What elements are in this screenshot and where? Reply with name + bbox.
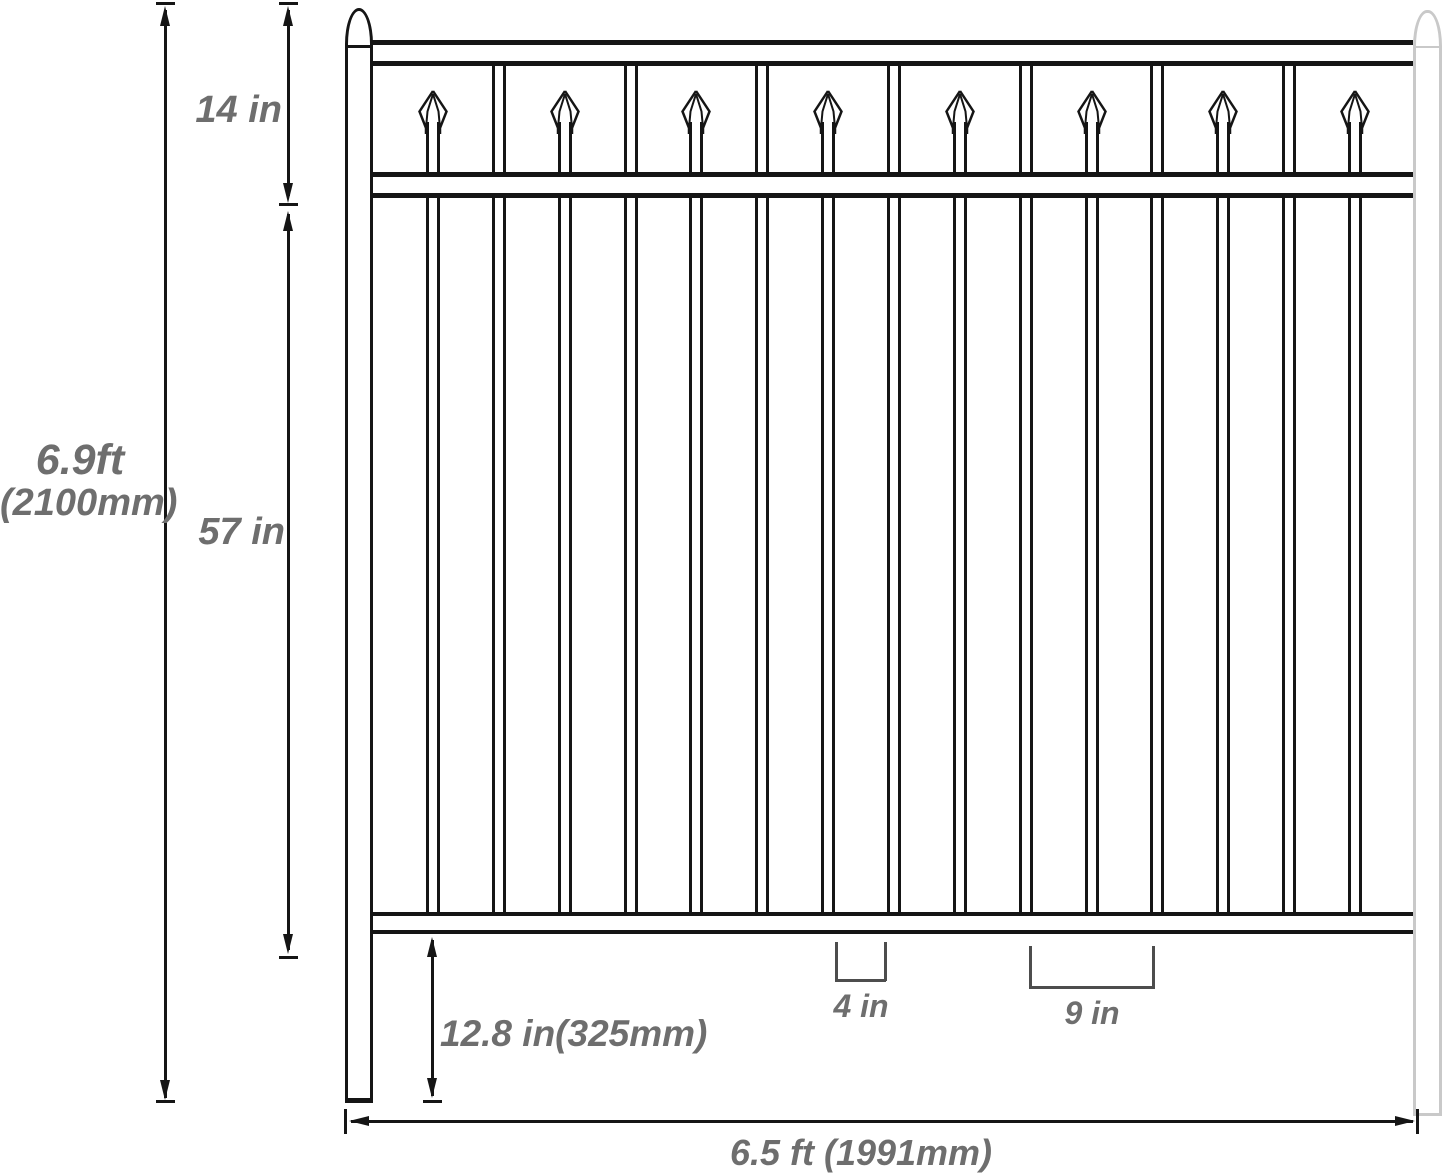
arrow-up-icon — [283, 211, 293, 231]
spear-finial-icon — [418, 88, 448, 134]
spear-finial-icon — [681, 88, 711, 134]
mid-section-label: 57 in — [140, 512, 285, 553]
dim-line — [287, 214, 290, 950]
spear-picket — [558, 122, 572, 912]
dim-tick — [1416, 1109, 1419, 1134]
arrow-down-icon — [160, 1080, 170, 1100]
arrow-right-icon — [1395, 1116, 1415, 1126]
dim-tick — [423, 1100, 442, 1103]
middle-rail — [372, 172, 1413, 198]
bracket-right-line — [884, 942, 887, 981]
ground-clearance-label: 12.8 in(325mm) — [440, 1014, 707, 1054]
arrow-down-icon — [283, 183, 293, 203]
arrow-down-icon — [283, 934, 293, 954]
bottom-rail — [372, 912, 1413, 934]
spear-picket — [821, 122, 835, 912]
spear-finial-icon — [945, 88, 975, 134]
bracket-right-line — [1152, 946, 1155, 988]
right-post — [1413, 10, 1442, 1116]
dim-line — [351, 1120, 1413, 1123]
spear-finial-icon — [1077, 88, 1107, 134]
dim-tick — [279, 956, 298, 959]
spear-picket — [953, 122, 967, 912]
dim-tick — [279, 203, 298, 206]
picket-gap-label: 4 in — [811, 989, 911, 1024]
left-post — [345, 8, 373, 1103]
arrow-left-icon — [349, 1116, 369, 1126]
total-height-feet: 6.9ft — [0, 437, 160, 483]
spear-finial-icon — [1340, 88, 1370, 134]
bracket-left-line — [835, 942, 838, 981]
spear-picket — [1085, 122, 1099, 912]
total-height-mm: (2100mm) — [0, 483, 160, 524]
spear-picket — [1216, 122, 1230, 912]
spear-picket — [426, 122, 440, 912]
top-rail — [372, 40, 1413, 66]
dim-line — [164, 10, 167, 1098]
top-section-label: 14 in — [140, 90, 282, 131]
picket-spacing-label: 9 in — [1040, 996, 1144, 1031]
spear-finial-icon — [550, 88, 580, 134]
dim-line — [431, 940, 434, 1096]
dim-tick — [344, 1109, 347, 1134]
bracket-left-line — [1029, 946, 1032, 988]
dim-tick — [156, 2, 175, 5]
total-width-label: 6.5 ft (1991mm) — [661, 1134, 1061, 1173]
total-height-label: 6.9ft (2100mm) — [0, 437, 160, 524]
arrow-up-icon — [160, 6, 170, 26]
dim-line — [287, 10, 290, 196]
spear-finial-icon — [1208, 88, 1238, 134]
fence-dimension-diagram: 6.9ft (2100mm) 14 in 57 in 12.8 in(325mm… — [0, 0, 1445, 1169]
spear-picket — [1348, 122, 1362, 912]
bracket-bottom-line — [835, 979, 886, 982]
dim-tick — [279, 2, 298, 5]
bracket-bottom-line — [1029, 986, 1155, 989]
arrow-up-icon — [427, 937, 437, 957]
arrow-down-icon — [427, 1078, 437, 1098]
arrow-up-icon — [283, 6, 293, 26]
spear-finial-icon — [813, 88, 843, 134]
dim-tick — [156, 1100, 175, 1103]
spear-picket — [689, 122, 703, 912]
